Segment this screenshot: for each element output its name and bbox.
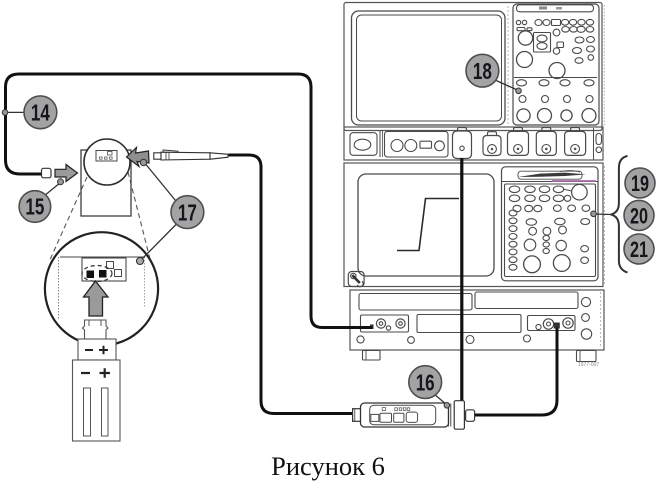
svg-text:18: 18 [473, 58, 492, 84]
svg-text:1977-007: 1977-007 [578, 362, 599, 368]
svg-text:15: 15 [25, 194, 44, 220]
svg-text:17: 17 [178, 199, 197, 225]
svg-text:21: 21 [630, 237, 648, 262]
svg-text:20: 20 [630, 204, 648, 229]
svg-text:14: 14 [31, 100, 50, 126]
svg-text:16: 16 [416, 369, 435, 395]
svg-text:19: 19 [631, 171, 649, 196]
svg-text:Рисунок 6: Рисунок 6 [271, 451, 385, 481]
